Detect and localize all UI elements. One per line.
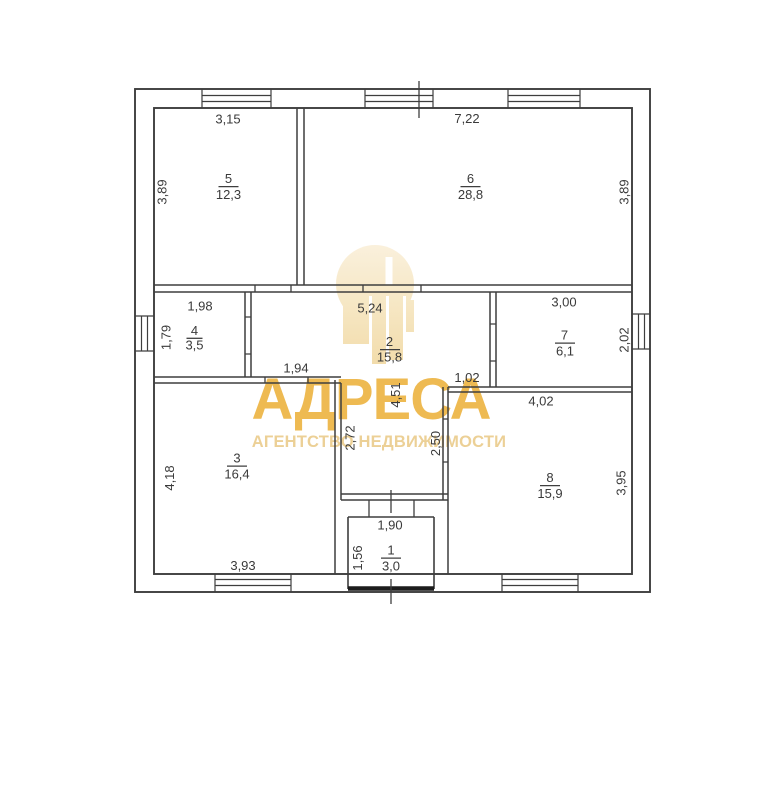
svg-text:2: 2: [386, 334, 393, 349]
svg-text:2,50: 2,50: [428, 431, 443, 456]
svg-text:12,3: 12,3: [216, 187, 241, 202]
svg-text:1,90: 1,90: [377, 518, 402, 533]
svg-text:3,95: 3,95: [614, 470, 629, 495]
svg-text:1: 1: [387, 543, 394, 558]
svg-text:3: 3: [233, 451, 240, 466]
svg-text:6: 6: [467, 171, 474, 186]
svg-text:1,56: 1,56: [350, 545, 365, 570]
svg-text:5: 5: [225, 171, 232, 186]
svg-text:3,93: 3,93: [230, 558, 255, 573]
svg-text:3,00: 3,00: [551, 295, 576, 310]
svg-text:16,4: 16,4: [224, 467, 249, 482]
svg-text:2,72: 2,72: [343, 425, 358, 450]
svg-text:1,98: 1,98: [187, 299, 212, 314]
svg-text:7: 7: [561, 328, 568, 343]
svg-text:3,0: 3,0: [382, 559, 400, 574]
svg-text:6,1: 6,1: [556, 344, 574, 359]
svg-text:1,79: 1,79: [159, 325, 174, 350]
svg-text:7,22: 7,22: [454, 111, 479, 126]
svg-text:5,24: 5,24: [357, 301, 382, 316]
svg-text:8: 8: [546, 470, 553, 485]
svg-text:3,89: 3,89: [617, 179, 632, 204]
svg-text:1,94: 1,94: [283, 361, 308, 376]
svg-text:3,5: 3,5: [185, 338, 203, 353]
svg-text:15,8: 15,8: [377, 350, 402, 365]
svg-text:АГЕНТСТВО НЕДВИЖИМОСТИ: АГЕНТСТВО НЕДВИЖИМОСТИ: [252, 433, 506, 451]
svg-text:4: 4: [191, 323, 198, 338]
svg-text:3,15: 3,15: [215, 112, 240, 127]
svg-text:28,8: 28,8: [458, 187, 483, 202]
svg-text:2,02: 2,02: [617, 327, 632, 352]
svg-text:4,18: 4,18: [162, 465, 177, 490]
svg-text:1,02: 1,02: [454, 370, 479, 385]
svg-text:3,89: 3,89: [155, 179, 170, 204]
svg-text:4,51: 4,51: [388, 382, 403, 407]
svg-text:15,9: 15,9: [537, 486, 562, 501]
svg-text:4,02: 4,02: [528, 394, 553, 409]
